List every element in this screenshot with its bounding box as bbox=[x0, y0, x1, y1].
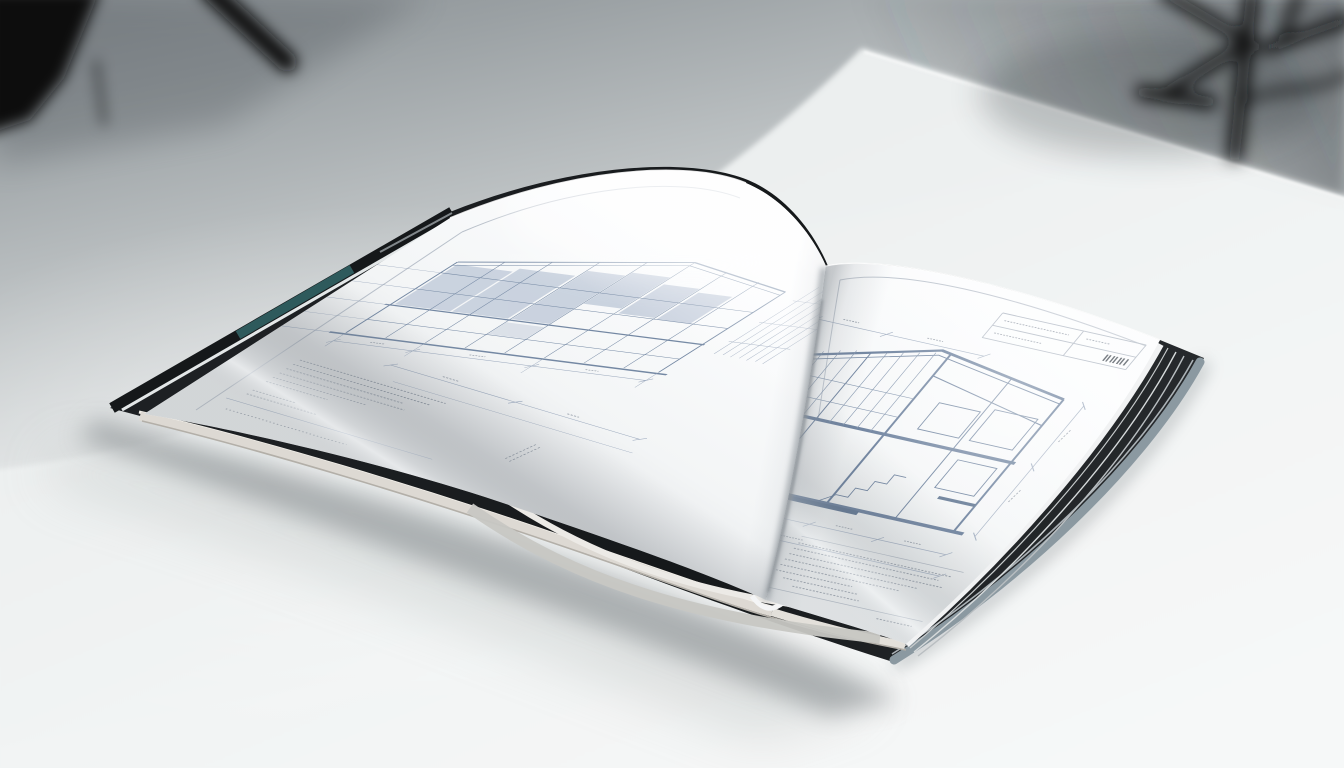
studio-scene bbox=[0, 0, 1344, 768]
scene-render bbox=[0, 0, 1344, 768]
